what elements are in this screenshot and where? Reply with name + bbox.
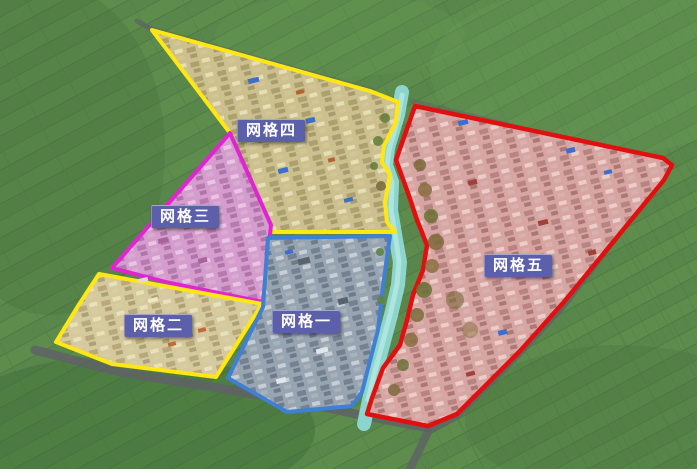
zone-grid-5-label: 网格五 [484, 254, 552, 277]
zone-grid-4-label: 网格四 [237, 119, 305, 142]
aerial-zoning-map: 网格四 网格三 网格二 网格一 网格五 [0, 0, 697, 469]
map-canvas [0, 0, 697, 469]
zone-grid-2-label: 网格二 [124, 314, 192, 337]
zone-grid-3-label: 网格三 [151, 205, 219, 228]
zone-grid-1-label: 网格一 [272, 310, 340, 333]
